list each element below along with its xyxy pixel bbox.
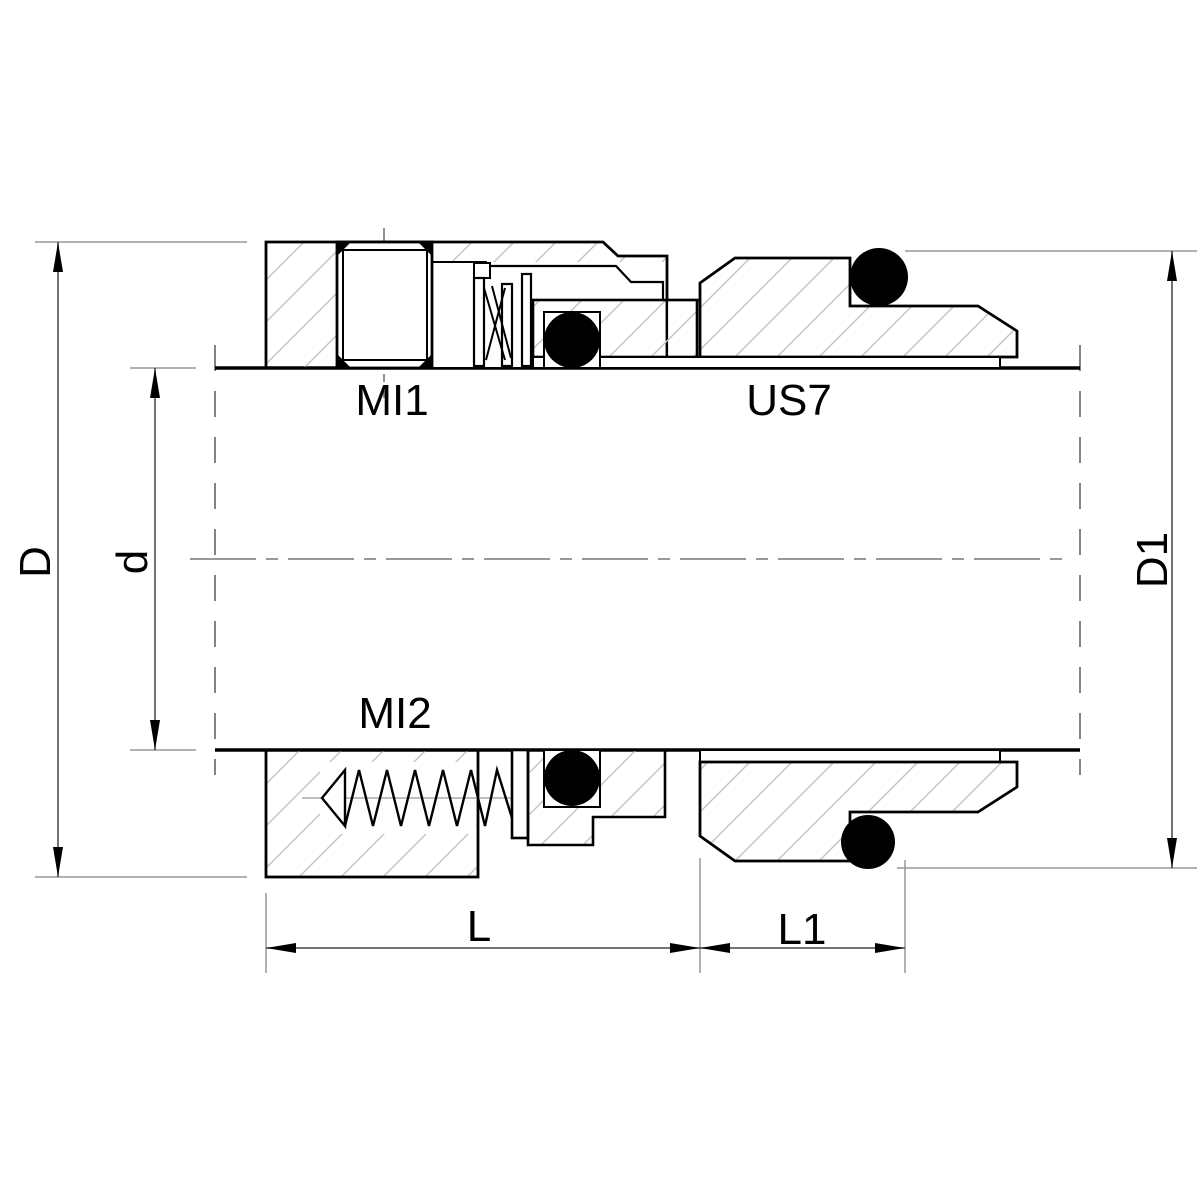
upper-shaft-oring	[544, 312, 600, 368]
lower-seat-oring	[841, 815, 895, 869]
upper-spring-tab	[474, 263, 490, 278]
upper-spring-plate-right	[522, 274, 531, 366]
dim-label-D: D	[11, 546, 60, 578]
lower-shaft-oring	[544, 750, 600, 806]
seal-cross-section-drawing: D d D1 L L1 MI1 US7 MI2	[0, 0, 1200, 1200]
part-label-us7: US7	[746, 376, 832, 425]
part-label-mi1: MI1	[355, 376, 428, 425]
technical-drawing-canvas: D d D1 L L1 MI1 US7 MI2	[0, 0, 1200, 1200]
dim-label-D1: D1	[1128, 532, 1177, 588]
upper-seat-oring	[850, 248, 908, 306]
upper-sleeve-band	[533, 357, 1000, 368]
set-screw-hole-outer	[337, 242, 432, 368]
upper-spring-plate-left	[474, 278, 484, 366]
part-label-mi2: MI2	[358, 689, 431, 738]
drawing-background	[0, 0, 1200, 1200]
dim-label-d: d	[108, 550, 157, 574]
lower-sleeve-band	[700, 750, 1000, 762]
dim-label-L1: L1	[778, 905, 827, 954]
lower-follower-plate	[512, 750, 528, 838]
dim-label-L: L	[467, 902, 491, 951]
